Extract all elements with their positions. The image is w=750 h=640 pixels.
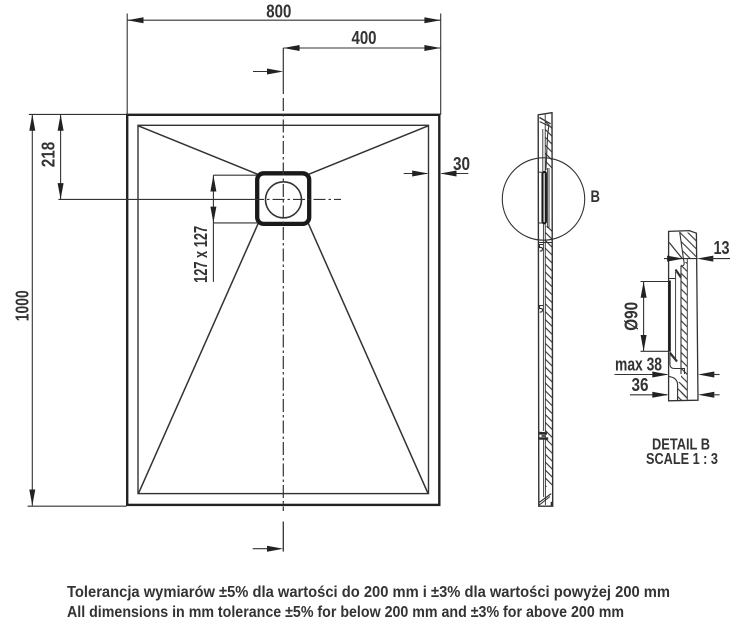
svg-text:1000: 1000 bbox=[13, 290, 33, 321]
svg-text:30: 30 bbox=[453, 154, 470, 174]
svg-text:13: 13 bbox=[714, 238, 730, 258]
svg-text:max 38: max 38 bbox=[615, 355, 662, 375]
svg-text:Tolerancja wymiarów ±5% dla wa: Tolerancja wymiarów ±5% dla wartości do … bbox=[67, 584, 670, 601]
svg-text:B: B bbox=[591, 187, 601, 206]
svg-text:Ø90: Ø90 bbox=[622, 302, 642, 331]
svg-text:127 x 127: 127 x 127 bbox=[191, 226, 211, 283]
svg-text:SCALE 1 : 3: SCALE 1 : 3 bbox=[646, 451, 718, 468]
svg-text:218: 218 bbox=[39, 142, 59, 168]
svg-text:All dimensions in mm tolerance: All dimensions in mm tolerance ±5% for b… bbox=[67, 604, 624, 621]
svg-text:36: 36 bbox=[632, 375, 649, 395]
svg-text:800: 800 bbox=[266, 1, 291, 21]
svg-text:400: 400 bbox=[352, 28, 377, 48]
